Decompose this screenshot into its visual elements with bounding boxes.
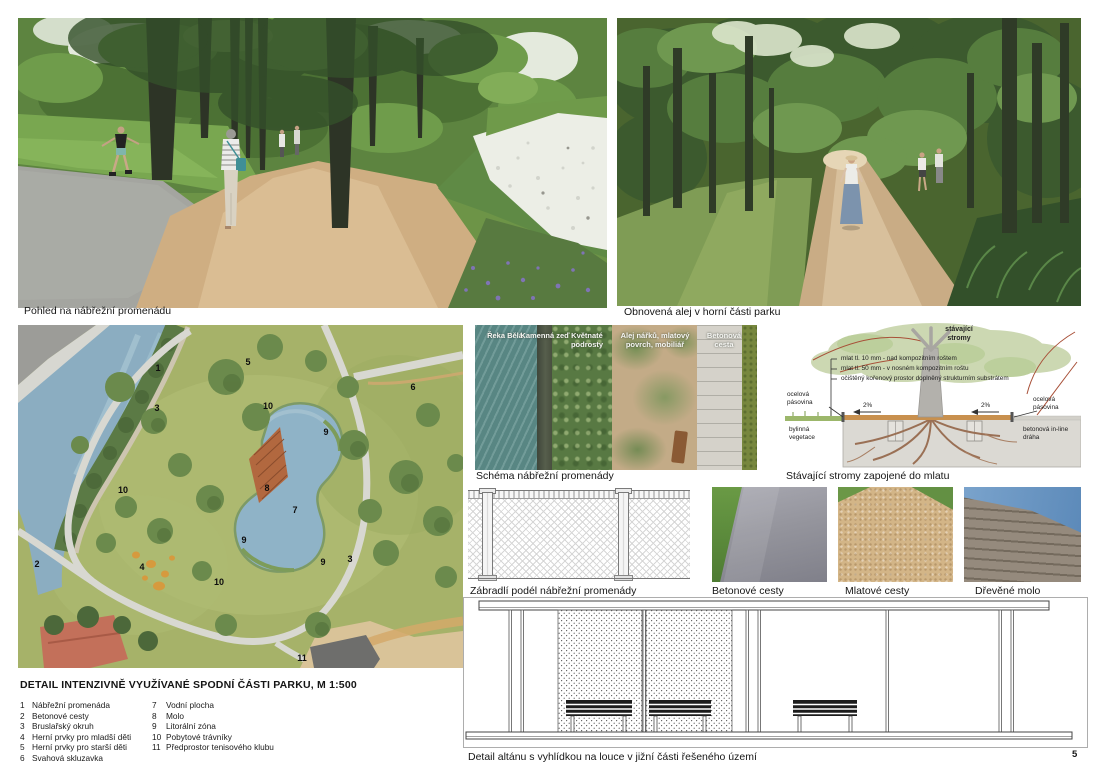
- legend-item: 5Herní prvky pro starší děti: [20, 742, 131, 753]
- promenade-scheme: Řeka Bělá Kamenná zeď Květnaté podrosty …: [475, 325, 757, 470]
- grass-corner: [838, 487, 953, 582]
- scheme-label-concrete: Betonová cesta: [699, 332, 749, 349]
- caption-pavilion: Detail altánu s vyhlídkou na louce v již…: [468, 751, 757, 763]
- scheme-strip-river: [475, 325, 537, 470]
- photo-mlat-path: [838, 487, 953, 582]
- plan-marker: 10: [214, 577, 224, 587]
- photo-alley: [617, 18, 1081, 306]
- plan-marker: 3: [154, 403, 159, 413]
- scheme-label-understory: Květnaté podrosty: [559, 332, 615, 349]
- plan-marker: 10: [263, 401, 273, 411]
- label-steel-flat-left: ocelová pásovina: [787, 391, 829, 407]
- caption-tree-detail: Stávající stromy zapojené do mlatu: [786, 470, 949, 482]
- presentation-board: Pohled na nábřežní promenádu: [0, 0, 1100, 778]
- railing-mesh: [468, 495, 690, 578]
- plan-marker: 11: [297, 653, 307, 663]
- site-plan: 1 3 5 10 6 9 8 7 10 9 9 3 2 4 10 11: [18, 325, 463, 668]
- plan-marker: 5: [245, 357, 250, 367]
- legend-item: 8Molo: [152, 711, 274, 722]
- slope-left-label: 2%: [863, 402, 872, 410]
- label-existing-trees: stávající stromy: [935, 326, 983, 344]
- scheme-label-alley: Alej nářků, mlatový povrch, mobiliář: [611, 332, 699, 349]
- plan-marker: 7: [292, 505, 297, 515]
- photo-promenade: [18, 18, 607, 308]
- bench: [793, 700, 857, 732]
- page-number: 5: [1072, 749, 1077, 760]
- railing-post: [618, 492, 629, 578]
- legend-item: 9Litorální zóna: [152, 721, 274, 732]
- plan-marker: 9: [323, 427, 328, 437]
- water-surface: [964, 487, 1081, 582]
- legend-item: 6Svahová skluzavka: [20, 753, 131, 764]
- plan-marker: 10: [118, 485, 128, 495]
- plan-marker: 3: [347, 554, 352, 564]
- caption-photo-concrete: Betonové cesty: [712, 585, 784, 597]
- railing-ground-line: [468, 578, 690, 582]
- label-steel-flat-right: ocelová pásovina: [1033, 396, 1079, 412]
- photo-concrete-path: [712, 487, 827, 582]
- legend-item: 4Herní prvky pro mladší děti: [20, 732, 131, 743]
- railing-top-rail: [468, 490, 690, 499]
- label-inline-track: betonová in-line dráha: [1023, 426, 1077, 442]
- legend-column-1: 1Nábřežní promenáda 2Betonové cesty 3Bru…: [20, 700, 131, 764]
- plan-marker: 9: [320, 557, 325, 567]
- alley-visualisation-image: [617, 18, 1081, 306]
- caption-photo-promenade: Pohled na nábřežní promenádu: [24, 305, 171, 317]
- legend-item: 3Bruslařský okruh: [20, 721, 131, 732]
- plan-marker: 8: [264, 483, 269, 493]
- plan-marker: 9: [241, 535, 246, 545]
- railing-drawing: [468, 487, 690, 582]
- site-plan-drawing: [18, 325, 463, 668]
- caption-photo-mlat: Mlatové cesty: [845, 585, 909, 597]
- annotation-root-space: očištěný kořenový prostor doplněný struk…: [841, 375, 1009, 383]
- legend-item: 1Nábřežní promenáda: [20, 700, 131, 711]
- legend-item: 7Vodní plocha: [152, 700, 274, 711]
- scheme-strip-stone-wall: [537, 325, 552, 470]
- legend-item: 10Pobytové trávníky: [152, 732, 274, 743]
- photo-wooden-pier: [964, 487, 1081, 582]
- plan-title: DETAIL INTENZIVNĚ VYUŽÍVANÉ SPODNÍ ČÁSTI…: [20, 679, 357, 691]
- grass-corner: [838, 487, 953, 582]
- tree-detail: stávající stromy mlat tl. 10 mm - nad ko…: [785, 322, 1081, 470]
- annotation-mlat-10: mlat tl. 10 mm - nad kompozitním roštem: [841, 355, 957, 363]
- pavilion-elevation-drawing: [463, 597, 1088, 748]
- label-herb-vegetation: bylinná vegetace: [789, 426, 831, 442]
- caption-scheme: Schéma nábřežní promenády: [476, 470, 614, 482]
- caption-railing: Zábradlí podél nábřežní promenády: [470, 585, 636, 597]
- promenade-visualisation-image: [18, 18, 607, 308]
- plan-marker: 6: [410, 382, 415, 392]
- plan-marker: 2: [34, 559, 39, 569]
- slope-right-label: 2%: [981, 402, 990, 410]
- railing-post: [482, 492, 493, 578]
- legend-column-2: 7Vodní plocha 8Molo 9Litorální zóna 10Po…: [152, 700, 274, 753]
- caption-photo-alley: Obnovená alej v horní části parku: [624, 306, 780, 318]
- annotation-mlat-50: mlat tl. 50 mm - v nosném kompozitním ro…: [841, 365, 969, 373]
- legend-item: 11Předprostor tenisového klubu: [152, 742, 274, 753]
- pavilion-elevation: [463, 597, 1088, 748]
- plan-marker: 1: [155, 363, 160, 373]
- plan-marker: 4: [139, 562, 144, 572]
- caption-photo-pier: Dřevěné molo: [975, 585, 1040, 597]
- legend-item: 2Betonové cesty: [20, 711, 131, 722]
